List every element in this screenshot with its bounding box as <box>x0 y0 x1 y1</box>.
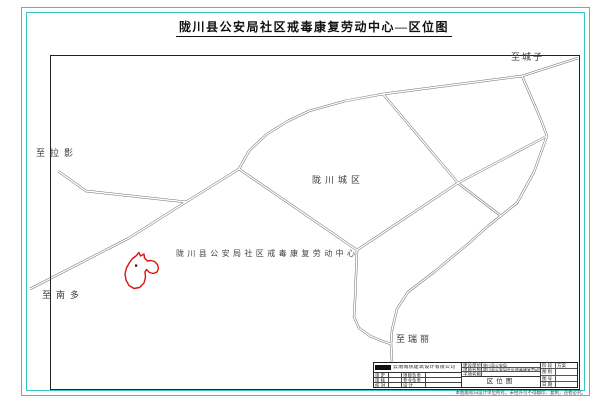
sig-value <box>426 378 461 382</box>
sig-value <box>389 383 402 387</box>
field-label: 建设单位 <box>462 363 482 367</box>
drawing-sheet: 陇川县公安局社区戒毒康复劳动中心—区位图 至城子 至拉影 至南多 至 <box>0 0 600 400</box>
label-to-laying: 至拉影 <box>36 146 78 159</box>
label-city-area: 陇川城区 <box>312 173 364 186</box>
title-block: 云南城热建筑设计有限公司 审 定 项目负责 审 核 专业负责 校 对 <box>373 362 578 388</box>
label-to-ruili: 至瑞丽 <box>396 332 432 345</box>
sig-value <box>426 373 461 377</box>
sig-value <box>389 373 402 377</box>
title-block-project: 建设单位 陇川县公安局 项目名称 陇川县公安局社区戒毒康复劳动中心 子项名称 区… <box>462 363 541 387</box>
field-value: 陇川县公安局社区戒毒康复劳动中心 <box>482 368 540 372</box>
label-to-nanduo: 至南多 <box>42 288 84 301</box>
project-fields: 建设单位 陇川县公安局 项目名称 陇川县公安局社区戒毒康复劳动中心 子项名称 <box>462 363 540 377</box>
field-value: 陇川县公安局 <box>482 363 540 367</box>
sig-label: 校 对 <box>374 383 389 387</box>
company-row: 云南城热建筑设计有限公司 <box>374 363 461 373</box>
sig-label: 审 定 <box>374 373 389 377</box>
signature-row: 校 对 设 计 <box>374 383 461 387</box>
signature-grid: 审 定 项目负责 审 核 专业负责 校 对 设 计 <box>374 373 461 387</box>
meta-value <box>556 382 577 387</box>
sig-label: 设 计 <box>402 383 426 387</box>
field-label: 项目名称 <box>462 368 482 372</box>
sig-label: 审 核 <box>374 378 389 382</box>
label-to-chengzi: 至城子 <box>511 50 544 63</box>
company-logo <box>375 365 391 370</box>
meta-label: 阶 段 <box>541 363 556 368</box>
project-field-row: 子项名称 <box>462 372 540 376</box>
meta-value: 方案 <box>556 363 577 368</box>
copyright-note: 本图版权归设计单位所有，未经许可不得翻印、复制，违者必究。 <box>346 390 586 396</box>
meta-label: 图 号 <box>541 376 556 381</box>
sig-label: 专业负责 <box>402 378 426 382</box>
field-value <box>482 372 540 376</box>
label-site-name: 陇川县公安局社区戒毒康复劳动中心 <box>176 248 358 259</box>
meta-value <box>556 369 577 374</box>
field-label: 子项名称 <box>462 372 482 376</box>
title-block-meta: 阶 段 方案 图 别 图 号 日 期 <box>541 363 577 387</box>
meta-label: 图 别 <box>541 369 556 374</box>
drawing-title: 区位图 <box>462 377 540 387</box>
title-block-signatures: 云南城热建筑设计有限公司 审 定 项目负责 审 核 专业负责 校 对 <box>374 363 462 387</box>
sig-label: 项目负责 <box>402 373 426 377</box>
sig-value <box>389 378 402 382</box>
sig-value <box>426 383 461 387</box>
meta-row: 日 期 <box>541 382 577 387</box>
drawing-frame <box>50 55 580 390</box>
meta-label: 日 期 <box>541 382 556 387</box>
meta-value <box>556 376 577 381</box>
company-name: 云南城热建筑设计有限公司 <box>393 365 455 370</box>
